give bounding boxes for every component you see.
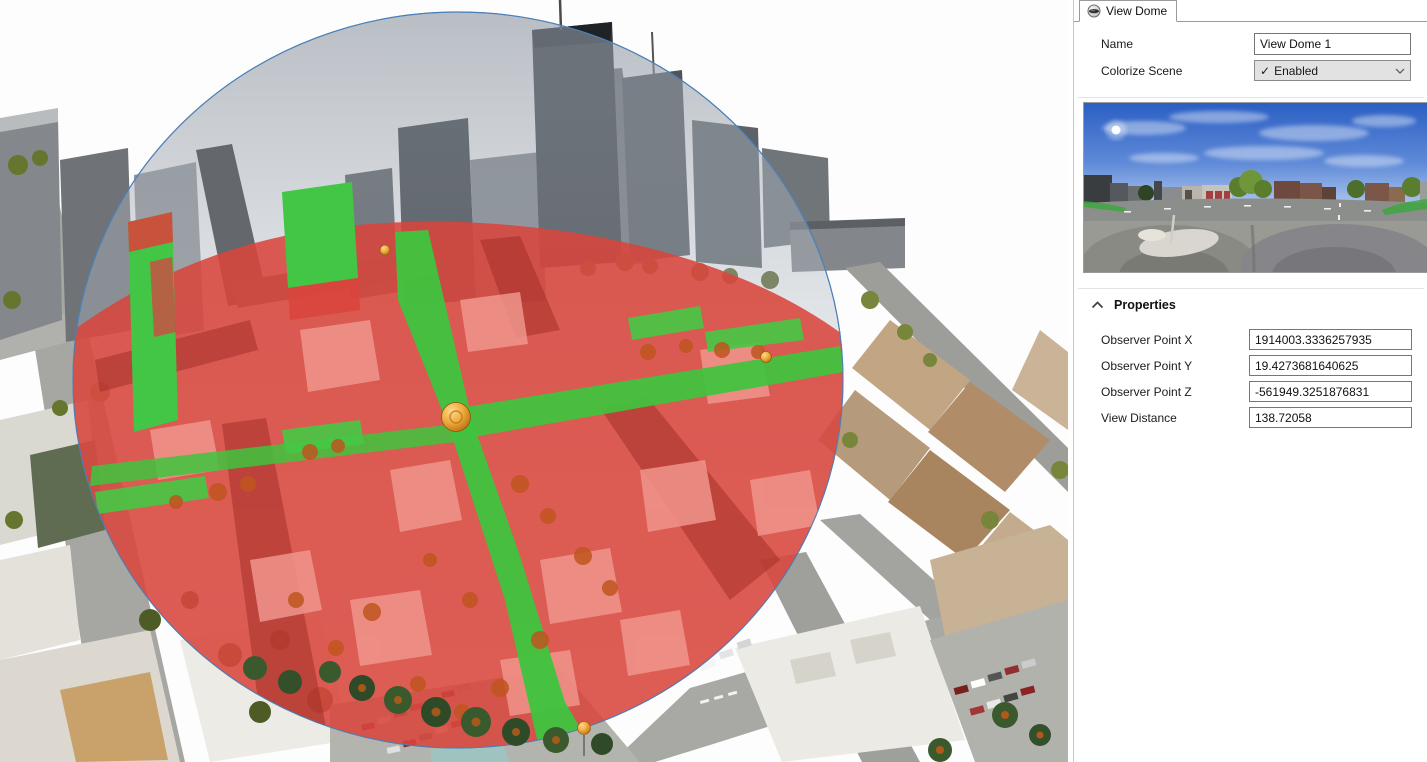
colorize-scene-value: Enabled — [1274, 64, 1318, 78]
observer-sphere[interactable] — [442, 403, 471, 432]
chevron-down-icon — [1395, 68, 1405, 74]
chevron-up-icon[interactable] — [1091, 301, 1104, 309]
colorize-scene-label: Colorize Scene — [1101, 64, 1182, 78]
separator — [1078, 288, 1424, 289]
view-distance-input[interactable] — [1249, 407, 1412, 428]
view-dome-icon — [1087, 4, 1101, 18]
observer-point-x-input[interactable] — [1249, 329, 1412, 350]
separator — [1078, 97, 1424, 98]
tab-view-dome[interactable]: View Dome — [1079, 0, 1177, 22]
3d-viewport[interactable] — [0, 0, 1068, 762]
panorama-preview — [1084, 103, 1427, 272]
properties-header: Properties — [1114, 298, 1176, 312]
observer-point-y-input[interactable] — [1249, 355, 1412, 376]
city-scene — [0, 0, 1068, 762]
view-dome-panel: View Dome Name Colorize Scene ✓ Enabled — [1073, 0, 1427, 762]
name-input[interactable] — [1254, 33, 1411, 55]
checkmark: ✓ — [1260, 64, 1270, 78]
app-window: View Dome Name Colorize Scene ✓ Enabled — [0, 0, 1427, 762]
observer-point-z-label: Observer Point Z — [1101, 385, 1192, 399]
observer-point-y-label: Observer Point Y — [1101, 359, 1192, 373]
observer-point-z-input[interactable] — [1249, 381, 1412, 402]
observer-point-x-label: Observer Point X — [1101, 333, 1192, 347]
view-distance-label: View Distance — [1101, 411, 1177, 425]
tab-label: View Dome — [1106, 4, 1167, 18]
colorize-scene-dropdown[interactable]: ✓ Enabled — [1254, 60, 1411, 81]
name-label: Name — [1101, 37, 1133, 51]
tab-strip: View Dome — [1074, 0, 1427, 22]
